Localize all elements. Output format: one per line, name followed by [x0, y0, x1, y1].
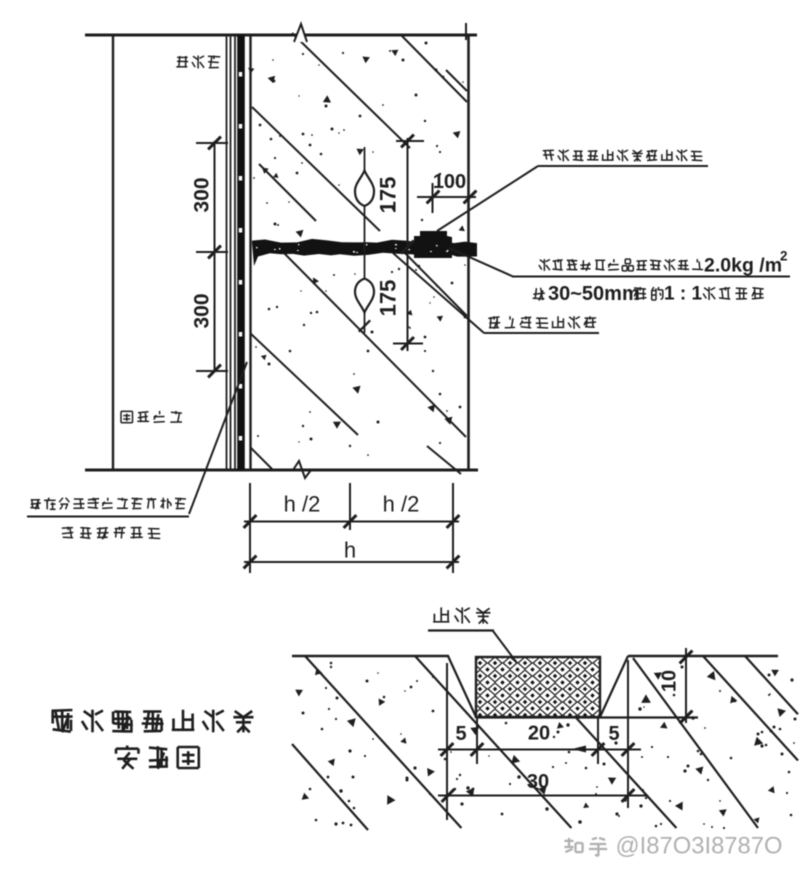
svg-text:20: 20 [528, 723, 550, 745]
svg-text:300: 300 [191, 293, 214, 328]
svg-text:300: 300 [191, 177, 214, 212]
svg-text:5: 5 [608, 723, 619, 745]
svg-text:5: 5 [455, 723, 466, 745]
svg-text:100: 100 [433, 171, 466, 193]
svg-text:175: 175 [376, 177, 401, 214]
svg-text:1 : 1: 1 : 1 [664, 284, 702, 305]
svg-text:@I87O3I8787O: @I87O3I8787O [615, 833, 782, 860]
svg-text:10: 10 [659, 670, 681, 692]
svg-text:2.0kg /m: 2.0kg /m [704, 255, 782, 277]
svg-text:2: 2 [780, 249, 788, 264]
svg-text:h /2: h /2 [383, 492, 420, 517]
svg-text:175: 175 [376, 280, 401, 317]
svg-text:30: 30 [527, 771, 549, 793]
svg-text:h: h [344, 538, 356, 563]
svg-text:30~50mm: 30~50mm [548, 283, 640, 305]
svg-text:h /2: h /2 [284, 492, 321, 517]
